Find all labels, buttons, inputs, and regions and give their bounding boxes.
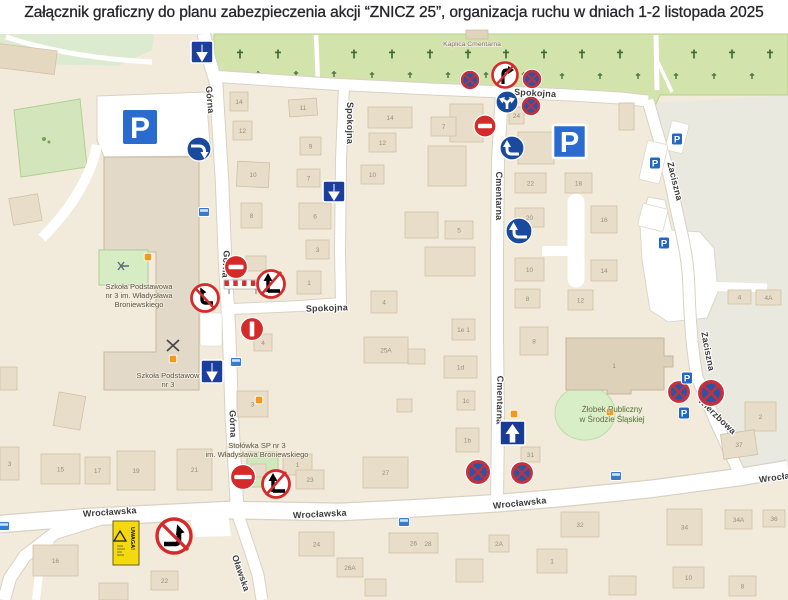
- svg-text:4: 4: [382, 299, 386, 306]
- svg-text:19: 19: [132, 468, 140, 475]
- svg-text:1: 1: [307, 280, 311, 287]
- svg-text:6: 6: [313, 213, 317, 220]
- svg-text:8: 8: [526, 296, 530, 303]
- svg-text:10: 10: [369, 172, 377, 179]
- svg-text:22: 22: [161, 578, 169, 585]
- svg-text:P: P: [560, 127, 579, 159]
- svg-text:17: 17: [94, 468, 102, 475]
- svg-text:21: 21: [191, 467, 199, 474]
- svg-text:31: 31: [527, 452, 535, 459]
- svg-text:Cmentarna: Cmentarna: [494, 172, 504, 222]
- svg-text:1d: 1d: [457, 364, 465, 371]
- svg-text:16: 16: [600, 217, 608, 224]
- svg-text:1: 1: [296, 462, 300, 469]
- svg-text:28: 28: [424, 541, 432, 548]
- svg-text:Kaplica Cmentarna: Kaplica Cmentarna: [443, 41, 501, 48]
- svg-text:10: 10: [685, 575, 693, 582]
- svg-text:9: 9: [309, 143, 313, 150]
- svg-text:2A: 2A: [495, 541, 504, 548]
- svg-text:7: 7: [442, 124, 446, 131]
- svg-text:12: 12: [577, 297, 585, 304]
- svg-text:27: 27: [382, 470, 390, 477]
- svg-text:10: 10: [249, 172, 257, 179]
- svg-text:5: 5: [457, 227, 461, 234]
- svg-text:24: 24: [313, 541, 321, 548]
- svg-text:14: 14: [386, 115, 394, 122]
- svg-text:nr 3 im. Władysława: nr 3 im. Władysława: [105, 291, 173, 300]
- svg-text:w Środzie Śląskiej: w Środzie Śląskiej: [579, 415, 645, 424]
- svg-text:11: 11: [300, 105, 307, 112]
- svg-text:nr 3: nr 3: [162, 380, 175, 389]
- svg-text:23: 23: [306, 477, 314, 484]
- svg-text:34: 34: [681, 524, 689, 531]
- svg-text:7: 7: [307, 175, 311, 182]
- svg-text:34A: 34A: [733, 517, 745, 524]
- svg-text:Spokojna: Spokojna: [345, 102, 355, 145]
- svg-text:Żłobek Publiczny: Żłobek Publiczny: [582, 405, 642, 414]
- svg-text:1e 1: 1e 1: [457, 327, 470, 334]
- svg-text:1: 1: [550, 558, 554, 565]
- svg-text:8: 8: [532, 338, 536, 345]
- svg-text:15: 15: [57, 466, 65, 473]
- svg-text:14: 14: [600, 268, 608, 275]
- svg-text:37: 37: [735, 442, 743, 449]
- svg-text:1c: 1c: [463, 398, 471, 405]
- svg-text:12: 12: [379, 140, 387, 147]
- svg-text:Górna: Górna: [228, 410, 239, 439]
- svg-text:25A: 25A: [380, 347, 392, 354]
- svg-text:10: 10: [526, 267, 534, 274]
- svg-text:Broniewskiego: Broniewskiego: [115, 300, 164, 309]
- svg-text:12: 12: [239, 128, 247, 135]
- svg-text:1b: 1b: [464, 437, 472, 444]
- svg-text:Szkoła Podstawow: Szkoła Podstawow: [137, 371, 201, 380]
- svg-text:3: 3: [316, 247, 320, 254]
- svg-text:UWAGA!: UWAGA!: [129, 527, 135, 550]
- svg-text:36: 36: [770, 516, 778, 523]
- svg-text:32: 32: [576, 522, 584, 529]
- svg-text:3: 3: [8, 461, 12, 468]
- svg-text:3: 3: [251, 401, 255, 408]
- svg-text:8: 8: [250, 213, 254, 220]
- svg-text:4: 4: [261, 340, 265, 347]
- svg-text:Stołówka SP nr 3: Stołówka SP nr 3: [228, 441, 285, 450]
- svg-text:8: 8: [741, 583, 745, 590]
- svg-text:im. Władysława Broniewskiego: im. Władysława Broniewskiego: [206, 450, 309, 459]
- svg-text:16: 16: [52, 558, 60, 565]
- svg-text:Szkoła Podstawowa: Szkoła Podstawowa: [105, 282, 173, 291]
- svg-text:26A: 26A: [344, 565, 356, 572]
- svg-text:24: 24: [513, 113, 521, 120]
- svg-text:4: 4: [738, 294, 742, 301]
- svg-text:Spokojna: Spokojna: [306, 302, 349, 313]
- svg-text:P: P: [130, 112, 150, 145]
- svg-text:4A: 4A: [765, 295, 774, 302]
- svg-text:14: 14: [235, 99, 243, 106]
- svg-text:2: 2: [759, 414, 763, 421]
- svg-text:18: 18: [575, 180, 583, 187]
- svg-text:Cmentarna: Cmentarna: [495, 376, 506, 426]
- svg-text:26: 26: [410, 540, 418, 547]
- svg-text:22: 22: [527, 180, 535, 187]
- svg-text:1: 1: [612, 363, 616, 370]
